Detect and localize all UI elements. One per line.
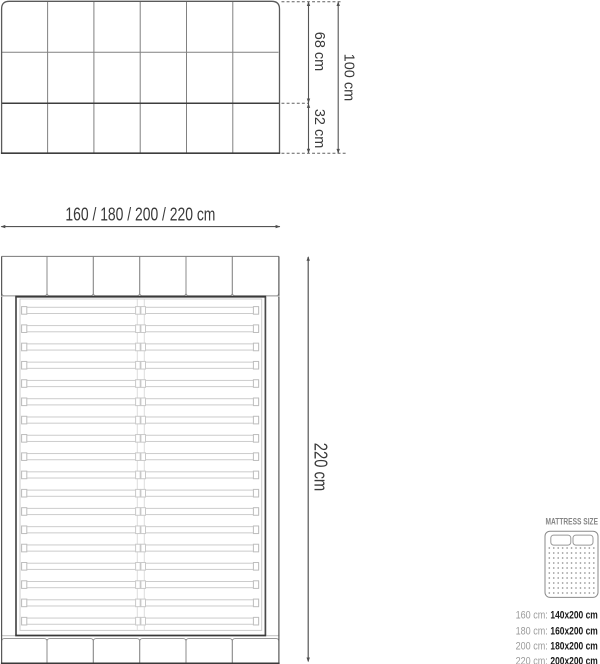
svg-text:MATTRESS SIZE: MATTRESS SIZE: [546, 516, 599, 526]
svg-text:200x200 cm: 200x200 cm: [550, 655, 597, 664]
svg-text:32 cm: 32 cm: [311, 109, 328, 149]
svg-text:220 cm: 220 cm: [310, 443, 330, 492]
svg-text:160 cm:: 160 cm:: [516, 609, 548, 621]
svg-text:160 / 180 / 200 / 220 cm: 160 / 180 / 200 / 220 cm: [65, 203, 215, 224]
svg-text:140x200 cm: 140x200 cm: [550, 609, 597, 621]
svg-text:220 cm:: 220 cm:: [516, 655, 548, 664]
svg-text:100 cm: 100 cm: [341, 54, 358, 102]
svg-text:68 cm: 68 cm: [311, 32, 328, 72]
svg-text:160x200 cm: 160x200 cm: [550, 625, 597, 637]
svg-text:180 cm:: 180 cm:: [516, 625, 548, 637]
svg-text:180x200 cm: 180x200 cm: [550, 640, 597, 652]
svg-text:200 cm:: 200 cm:: [516, 640, 548, 652]
